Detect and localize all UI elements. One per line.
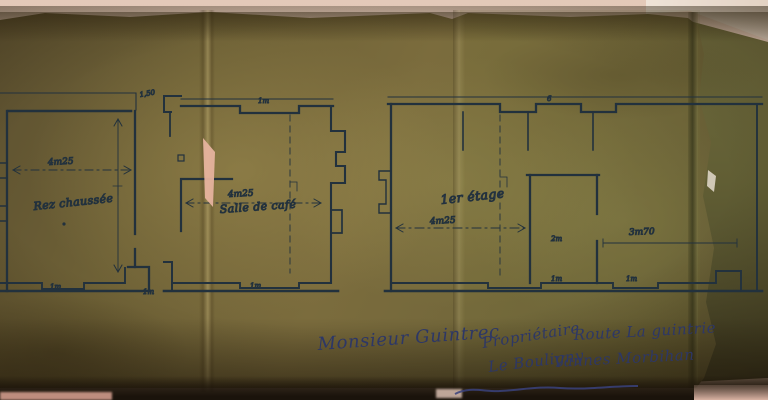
handwritten-annotations: Monsieur Guintrec Propriétaire Route La …: [316, 319, 717, 394]
middle-plan-wall-right-fireplace: [331, 106, 345, 283]
annotation-client: Monsieur Guintrec: [316, 321, 501, 355]
left-plan-door-dim: 1m: [50, 283, 61, 291]
middle-plan-width-dim: 4m25: [227, 189, 254, 200]
annotation-address-1: Route La guintrie: [572, 319, 716, 344]
right-plan-partition-stubs: [463, 112, 593, 150]
middle-plan-dim-tick: [290, 182, 297, 191]
left-plan-dim-tick: [113, 186, 122, 195]
middle-plan-fireplace-notch: [331, 210, 342, 233]
left-plan-edge-dim: 1m: [143, 288, 154, 296]
ink-dot: [62, 222, 65, 225]
right-plan-dim-line-right: [603, 239, 737, 247]
right-plan-center-dim: 2m: [550, 235, 562, 243]
right-plan-window-bump: [379, 171, 391, 213]
right-plan-wall-top: [388, 104, 762, 112]
middle-plan-bottom-door-dim: 1m: [250, 282, 261, 290]
photo-of-floor-plan-document: 4m25 Rez chaussée 1m 1m 1,50 1m 4m25: [0, 0, 768, 400]
right-plan-bottom-door-dim2: 1m: [626, 275, 637, 283]
tear-patch: [203, 138, 215, 207]
middle-plan-corner-dim: 1,50: [139, 88, 156, 99]
right-plan-wall-bottom-inner: [391, 271, 741, 291]
left-plan: 4m25 Rez chaussée 1m 1m: [0, 93, 154, 296]
middle-plan-corner-tl: [164, 96, 181, 112]
left-plan-outline-top: [0, 93, 136, 110]
middle-plan-post: [178, 155, 184, 161]
ink-drawing-layer: 4m25 Rez chaussée 1m 1m 1,50 1m 4m25: [0, 0, 768, 400]
right-plan: 6 1er étage 4m25 2m 3m70 1m 1m: [379, 95, 762, 291]
middle-plan-top-door-dim: 1m: [258, 97, 269, 105]
left-plan-room-label: Rez chaussée: [32, 192, 114, 213]
middle-plan-corner-bl: [164, 262, 172, 291]
left-plan-width-dim: 4m25: [47, 157, 74, 168]
middle-plan: 1,50 1m 4m25 Salle de café 1m: [139, 88, 345, 291]
right-plan-width-dim: 4m25: [429, 216, 456, 227]
middle-plan-wall-top: [181, 106, 333, 113]
right-plan-top-door-dim: 6: [547, 95, 552, 103]
right-plan-bottom-door-dim: 1m: [551, 275, 562, 283]
tear-nick-right: [707, 170, 716, 192]
right-plan-right-dim: 3m70: [629, 227, 655, 238]
annotation-cutoff-line: [455, 386, 638, 394]
right-plan-floor-label: 1er étage: [440, 185, 505, 207]
middle-plan-room-label: Salle de café: [219, 198, 296, 216]
left-plan-wall-bottom-inner: [0, 268, 125, 289]
